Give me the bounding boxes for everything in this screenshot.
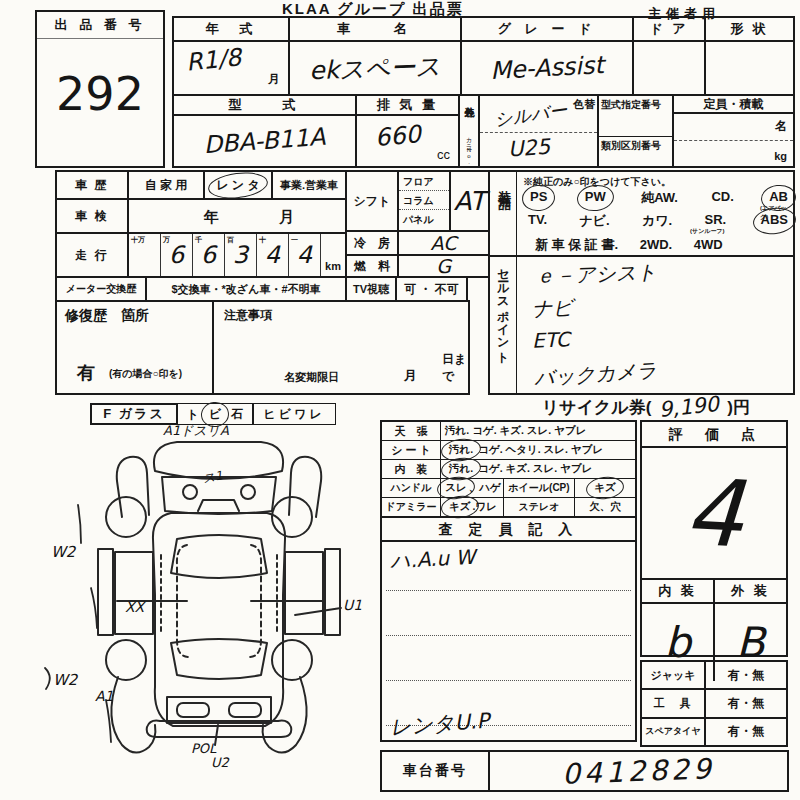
grade-cell: グ レ ー ド Me-Assist	[460, 16, 634, 96]
shift-opt-floor: フロア	[399, 172, 449, 191]
lot-number: 292	[37, 39, 163, 149]
opt-right-circled: キズ	[592, 481, 618, 495]
notes-box: 注意事項 名変期限日 月 日まで	[212, 300, 470, 395]
fuel-label: 燃 料	[345, 254, 399, 278]
condition-table: 天 張 汚れ. コゲ. キズ. スレ. ヤブレ シ ー ト 汚れ. コゲ. ヘタ…	[380, 420, 637, 518]
capacity-persons: 名	[775, 118, 787, 135]
month-suffix: 月	[268, 71, 280, 88]
meter-label: メーター交換歴	[55, 276, 147, 302]
inspector-header: 査 定 員 記 入	[382, 518, 635, 542]
equip-warranty: 新 車 保 証 書.	[535, 237, 618, 252]
digit-header: 一	[291, 235, 298, 245]
model-cell: 型 式 DBA-B11A	[172, 94, 357, 168]
shape-cell: 形 状	[704, 16, 795, 96]
equipment-row3: 新 車 保 証 書. 2WD. 4WD	[535, 236, 723, 254]
repair-has: 有	[77, 361, 95, 385]
equip-cd: CD.	[711, 189, 733, 207]
accessory-label: ジャッキ	[642, 662, 706, 688]
displacement-unit: cc	[437, 147, 450, 162]
score-box: 評 価 点 4 内 装 外 装 b B	[640, 420, 788, 657]
score-header: 評 価 点	[642, 422, 786, 448]
equip-pw: PW	[583, 189, 608, 207]
tv-label: TV視聴	[345, 276, 397, 302]
displacement-label: 排 気 量	[357, 96, 458, 116]
glass-opt-ishi: 石	[231, 406, 243, 423]
history-business: 事業.営業車	[271, 170, 347, 200]
capacity-label: 定員・積載	[674, 96, 793, 114]
inspection-cell: 年 月	[127, 198, 347, 234]
digit-header: 千	[195, 235, 202, 245]
equip-2wd: 2WD.	[640, 237, 673, 252]
digit-header: 十万	[131, 235, 145, 245]
row-label: 内 装	[382, 460, 441, 478]
row-mid: ステレオ	[504, 498, 575, 516]
interior-label: 内 装	[642, 580, 715, 602]
recycle-row: リサイクル券( 9,190 )円	[380, 394, 780, 420]
equipment-box: 装備品 ※純正のみ○印をつけて下さい。 PS PW 純AW. CD. AB (エ…	[488, 170, 795, 257]
inspection-month: 月	[279, 208, 294, 227]
mileage-digit-cell: 一 4	[289, 234, 321, 276]
chassis-value: 0412829	[489, 747, 787, 795]
shape-label: 形 状	[706, 18, 793, 42]
car-diagram: A1ドスリA ス1 W2 W2 A1 XX U1 POL U2	[25, 425, 385, 797]
condition-row-handle: ハンドル スレ 、ハゲ ホイール(CP) キズ	[382, 479, 635, 498]
shift-options: フロア コラム パネル	[397, 170, 451, 232]
row-left: キズ .ワレ	[441, 498, 504, 516]
equip-aw: 純AW.	[641, 189, 678, 207]
sales-label: セールスポイント	[496, 261, 509, 357]
equipment-label: 装備品	[495, 180, 513, 192]
diagram-u2: U2	[211, 755, 229, 770]
door-label: ド ア	[634, 18, 704, 42]
condition-row-seat: シ ー ト 汚れ. コゲ. ヘタリ. スレ. ヤブレ	[382, 441, 635, 460]
equip-sr-note: (サンルーフ)	[690, 227, 725, 236]
inspector-line	[386, 680, 631, 681]
ac-value: AC	[397, 230, 490, 256]
equip-4wd: 4WD	[694, 237, 723, 252]
equipment-row2: TV. ナビ. カワ. SR. ABS	[528, 212, 790, 230]
diagram-s1: ス1	[202, 467, 225, 487]
accessory-value: 有・無	[706, 719, 786, 745]
opt-first: 汚れ.	[445, 424, 469, 438]
color-value: シルバー	[493, 98, 569, 132]
chassis-box: 車台番号 0412829	[380, 750, 789, 792]
mileage-label: 走 行	[55, 232, 129, 278]
recycle-label: リサイクル券(	[542, 396, 652, 419]
door-cell: ド ア	[632, 16, 706, 96]
condition-row-mirror: ドアミラー キズ .ワレ ステレオ 欠、穴	[382, 498, 635, 516]
condition-row-interior: 内 装 汚れ. コゲ. キズ. スレ. ヤブレ	[382, 460, 635, 479]
code-cell: 型式指定番号 類別区別番号	[597, 94, 674, 168]
color-change-label: 色替	[573, 97, 595, 112]
repair-has-note: (有の場合○印を)	[109, 367, 182, 381]
year-value: R1/8	[185, 43, 243, 77]
year-cell: 年 式 R1/8 月	[172, 16, 290, 96]
shift-opt-column: コラム	[399, 191, 449, 210]
glass-opt-bi-circled: ビ	[207, 406, 223, 423]
diagram-w2-top: W2	[51, 543, 75, 561]
model-code-label: 型式指定番号	[599, 96, 672, 137]
equip-ps: PS	[528, 189, 549, 207]
color-no-label: カラーNo.	[466, 133, 472, 165]
sales-item: ナビ	[532, 294, 574, 322]
row-left: スレ 、ハゲ	[441, 479, 504, 497]
opt-first-circled: キズ	[447, 500, 473, 514]
accessory-row: ジャッキ 有・無	[642, 662, 786, 690]
inspector-bottom-note: レンタU.P	[389, 707, 490, 742]
row-options: 汚れ. コゲ. キズ. スレ. ヤブレ	[441, 422, 635, 440]
accessory-label: 工 具	[642, 690, 706, 716]
opt-rest: コゲ. キズ. スレ. ヤブレ	[472, 424, 586, 438]
row-label: 天 張	[382, 422, 441, 440]
color-value-cell: 色替 シルバー U25	[478, 94, 599, 168]
lot-label: 出 品 番 号	[37, 12, 163, 39]
recycle-amount: 9,190	[650, 391, 728, 423]
recycle-suffix: )円	[727, 396, 750, 419]
mileage-unit: km	[321, 234, 345, 276]
opt-first-circled: 汚れ.	[447, 462, 475, 476]
digit-header: 百	[227, 235, 234, 245]
history-rental: レ ン タ	[203, 170, 273, 200]
score-subheader: 内 装 外 装	[642, 578, 786, 604]
color-no-value: U25	[507, 135, 551, 162]
inspection-year: 年	[204, 208, 219, 227]
digit-header: 万	[163, 235, 170, 245]
row-right: 欠、穴	[575, 498, 635, 516]
displacement-value: 660	[374, 120, 422, 152]
displacement-cell: 排 気 量 660 cc	[355, 94, 460, 168]
diagram-w2-bottom: W2	[53, 671, 77, 689]
inspector-box: 査 定 員 記 入 ハ.A.u W レンタU.P	[380, 516, 637, 742]
row-options: 汚れ. コゲ. キズ. スレ. ヤブレ	[441, 460, 635, 478]
diagram-a1: A1	[95, 688, 113, 704]
history-rental-circled: レ ン タ	[214, 177, 262, 194]
accessory-value: 有・無	[706, 662, 786, 688]
tv-options: 可 ・ 不可	[395, 276, 468, 302]
name-cell: 車 名 ekスペース	[288, 16, 462, 96]
history-label: 車 歴	[55, 170, 129, 200]
row-label: シ ー ト	[382, 441, 441, 459]
diagram-glass-note: A1ドスリA	[163, 422, 229, 440]
condition-row-ceiling: 天 張 汚れ. コゲ. キズ. スレ. ヤブレ	[382, 422, 635, 441]
auction-sheet: KLAA グループ 出品票 主催者用 出 品 番 号 292 年 式 R1/8 …	[0, 0, 800, 800]
meter-options: $交換車・*改ざん車・#不明車	[145, 276, 347, 302]
diagram-pol: POL	[191, 741, 216, 756]
row-right: キズ	[575, 479, 635, 497]
opt-first-circled: 汚れ.	[447, 443, 475, 457]
fuel-value: G	[397, 254, 490, 278]
opt-rest: コゲ. キズ. スレ. ヤブレ	[478, 462, 592, 476]
equip-tv: TV.	[528, 212, 547, 230]
sales-item: ｅ－アシスト	[535, 259, 658, 290]
ac-label: 冷 房	[345, 230, 399, 256]
row-mid: ホイール(CP)	[504, 479, 575, 497]
notes-label: 注意事項	[224, 307, 272, 324]
repair-box: 修復歴 箇所 有 (有の場合○印を)	[55, 300, 214, 395]
notes-day: 日まで	[442, 351, 468, 385]
equipment-row1: PS PW 純AW. CD. AB	[528, 189, 790, 207]
sales-item: バックカメラ	[533, 357, 657, 393]
opt-first-circled: スレ	[443, 481, 469, 495]
capacity-cell: 定員・積載 名 kg	[672, 94, 795, 168]
row-label: ドアミラー	[382, 498, 441, 516]
accessory-label: スペアタイヤ	[642, 719, 706, 745]
glass-options-2: ヒビワレ	[252, 403, 336, 425]
lot-box: 出 品 番 号 292	[35, 10, 165, 168]
name-value: ekスペース	[289, 39, 461, 97]
inspection-label: 車 検	[55, 198, 129, 234]
inspector-line	[386, 635, 631, 636]
accessory-row: 工 具 有・無	[642, 690, 786, 718]
row-label: ハンドル	[382, 479, 441, 497]
name-label: 車 名	[290, 18, 460, 42]
equip-navi: ナビ.	[579, 212, 609, 230]
mileage-cell: 十万 万 6 千 6 百 3 十 4 一 4 km	[127, 232, 347, 278]
shift-opt-panel: パネル	[399, 210, 449, 230]
exterior-label: 外 装	[715, 580, 786, 602]
year-label: 年 式	[174, 18, 288, 42]
diagram-u1: U1	[343, 597, 362, 613]
accessory-value: 有・無	[706, 690, 786, 716]
repair-label: 修復歴 箇所	[65, 307, 149, 325]
glass-opt-to: ト	[187, 406, 199, 423]
sales-box: セールスポイント ｅ－アシスト ナビ ETC バックカメラ	[488, 255, 795, 395]
history-private: 自 家 用	[127, 170, 205, 200]
mileage-digit-cell: 十万	[129, 234, 161, 276]
mileage-digit-cell: 千 6	[193, 234, 225, 276]
chassis-label: 車台番号	[382, 752, 490, 790]
opt-rest: コゲ. ヘタリ. スレ. ヤブレ	[478, 443, 603, 457]
capacity-kg: kg	[774, 150, 787, 162]
sales-item: ETC	[532, 327, 570, 352]
sales-divider	[516, 257, 517, 393]
capacity-divider	[674, 140, 793, 141]
diagram-xx: XX	[125, 599, 144, 615]
color-label-strip: 外装色 カラーNo.	[458, 94, 480, 168]
row-options: 汚れ. コゲ. ヘタリ. スレ. ヤブレ	[441, 441, 635, 459]
equipment-divider	[516, 172, 517, 255]
model-value: DBA-B11A	[172, 110, 356, 173]
accessory-row: スペアタイヤ 有・無	[642, 719, 786, 745]
grade-value: Me-Assist	[461, 38, 633, 99]
mileage-digit-cell: 百 3	[225, 234, 257, 276]
class-code-label: 類別区別番号	[599, 137, 672, 155]
shift-value: AT	[449, 170, 490, 232]
score-value: 4	[639, 444, 790, 581]
notes-deadline: 名変期限日	[284, 370, 339, 385]
shift-label: シフト	[345, 170, 399, 232]
color-divider	[480, 132, 597, 133]
notes-month: 月	[404, 367, 417, 385]
mileage-digit-cell: 万 6	[161, 234, 193, 276]
mileage-digit-cell: 十 4	[257, 234, 289, 276]
inspector-note: ハ.A.u W	[389, 544, 476, 575]
equip-leather: カワ.	[642, 212, 672, 230]
equip-abs: ABS	[759, 212, 790, 230]
digit-header: 十	[259, 235, 266, 245]
inspector-line	[386, 590, 631, 591]
accessories-box: ジャッキ 有・無 工 具 有・無 スペアタイヤ 有・無	[640, 660, 788, 747]
